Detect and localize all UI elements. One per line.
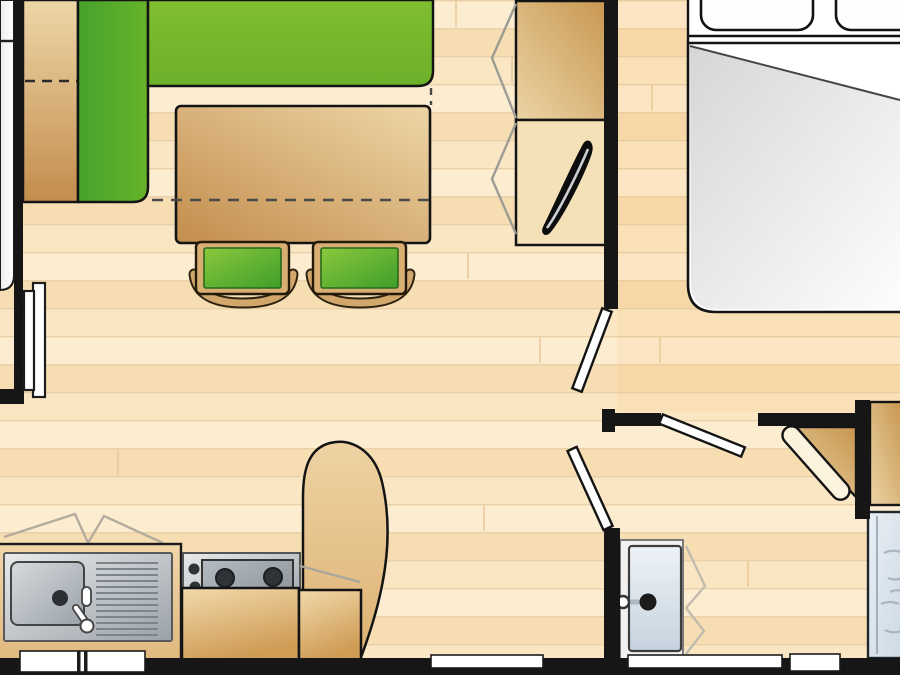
left-wall [14,0,23,404]
kitchen-base-cabinet-right [299,590,361,660]
stool-left [194,242,293,303]
shower [868,512,900,658]
pillow-right [836,0,900,30]
rear-window-left [431,655,543,668]
rear-window-right [628,655,782,668]
kitchen-base-cabinet-left [182,588,299,660]
entry-door [21,283,45,397]
stool-cushion [204,248,281,288]
wardrobe [870,402,900,505]
bathroom-drain [640,594,657,611]
kitchen-sink-basin [11,562,84,625]
burner-left [216,569,234,587]
stool-right [311,242,410,303]
burner-right [264,568,282,586]
stove-knob-top [189,564,200,575]
kitchen-window [20,651,145,672]
bedroom [688,0,900,312]
sink-drain [52,590,68,606]
floor-plan [0,0,900,675]
sofa-bench-left [78,0,148,202]
dining-table [176,106,430,243]
floor-plan-drawing [0,0,900,675]
bathroom-north-wall-west [613,413,661,426]
pillow-left [701,0,813,30]
exterior-step [0,0,14,290]
entry-door-panel-inner [24,291,34,390]
bathroom-window [790,654,840,671]
bathroom-west-wall [604,528,620,659]
tv-cabinet-bottom-shelf [516,120,610,245]
sofa-backrest-cabinet [23,0,78,202]
tv-cabinet-top-shelf [516,1,610,120]
sofa-seat-top [148,0,433,86]
bathroom-north-wall-east [758,413,867,426]
partition-wall-living-bedroom [604,0,618,309]
left-wall-stub [0,389,24,404]
stool-cushion [321,248,398,288]
bathroom-east-wall [855,400,870,519]
